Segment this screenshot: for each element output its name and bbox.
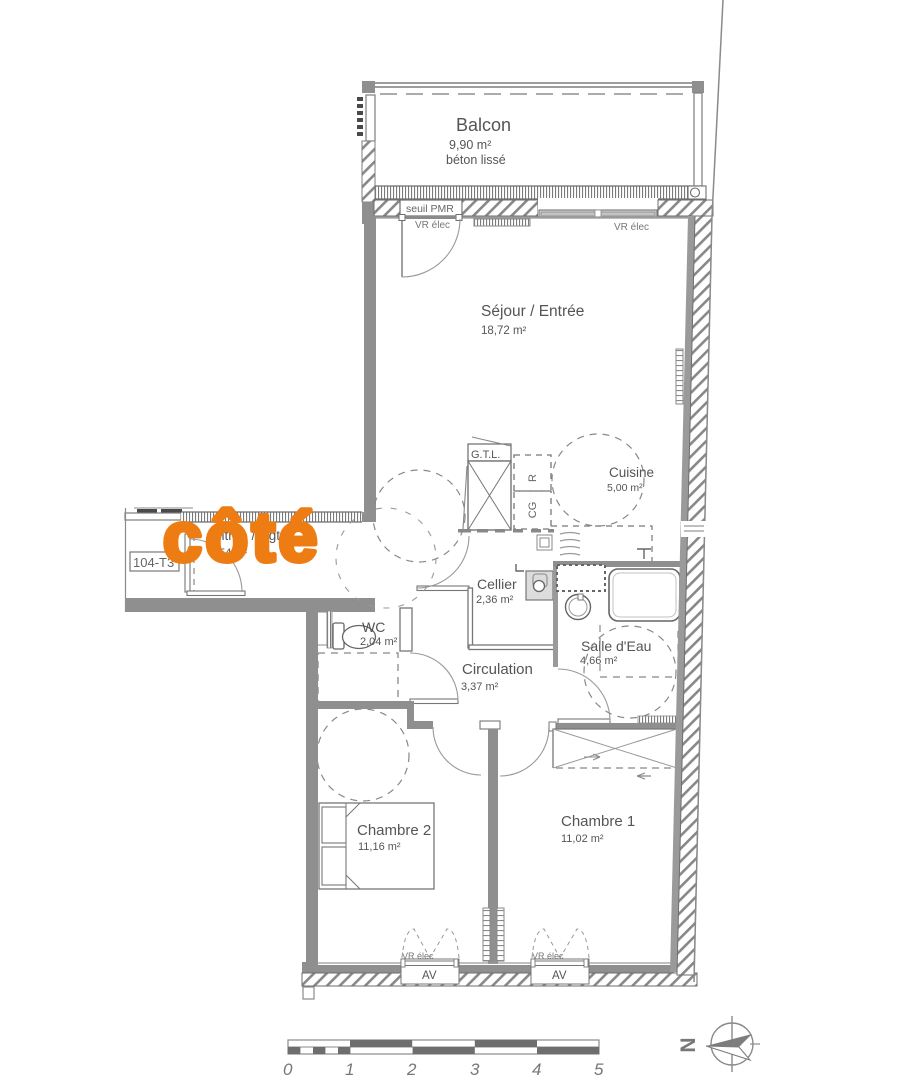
svg-text:11,02 m²: 11,02 m² — [561, 833, 604, 845]
svg-text:3,37 m²: 3,37 m² — [461, 681, 499, 693]
svg-text:Balcon: Balcon — [456, 115, 511, 135]
svg-text:2,36 m²: 2,36 m² — [476, 594, 514, 606]
svg-text:Chambre 1: Chambre 1 — [561, 813, 635, 830]
svg-text:WC: WC — [362, 619, 385, 635]
svg-text:R: R — [527, 474, 539, 482]
svg-text:VR élec: VR élec — [415, 220, 450, 231]
svg-text:4: 4 — [532, 1060, 541, 1079]
svg-text:CG: CG — [527, 502, 539, 519]
svg-text:AV: AV — [422, 970, 437, 982]
svg-text:Circulation: Circulation — [462, 661, 533, 678]
svg-text:18,72 m²: 18,72 m² — [481, 325, 527, 337]
svg-text:N: N — [677, 1037, 700, 1052]
svg-text:9,90 m²: 9,90 m² — [449, 138, 491, 152]
svg-text:11,16 m²: 11,16 m² — [358, 841, 401, 853]
svg-text:Cellier: Cellier — [477, 576, 517, 592]
svg-text:0: 0 — [283, 1060, 293, 1079]
svg-text:2: 2 — [406, 1060, 417, 1079]
svg-text:1: 1 — [345, 1060, 354, 1079]
svg-text:VR élec: VR élec — [614, 222, 649, 233]
svg-text:5: 5 — [594, 1060, 604, 1079]
svg-text:5,00 m²: 5,00 m² — [607, 482, 643, 494]
svg-text:côté: côté — [163, 498, 321, 576]
svg-text:Chambre 2: Chambre 2 — [357, 822, 431, 839]
svg-text:4,66 m²: 4,66 m² — [580, 655, 618, 667]
svg-text:AV: AV — [552, 970, 567, 982]
svg-text:béton lissé: béton lissé — [446, 153, 506, 167]
svg-text:seuil PMR: seuil PMR — [406, 203, 454, 215]
svg-text:3: 3 — [470, 1060, 480, 1079]
svg-text:Cuisine: Cuisine — [609, 465, 654, 480]
svg-text:G.T.L.: G.T.L. — [471, 449, 500, 461]
svg-text:2,04 m²: 2,04 m² — [360, 636, 398, 648]
svg-text:Séjour / Entrée: Séjour / Entrée — [481, 303, 584, 320]
